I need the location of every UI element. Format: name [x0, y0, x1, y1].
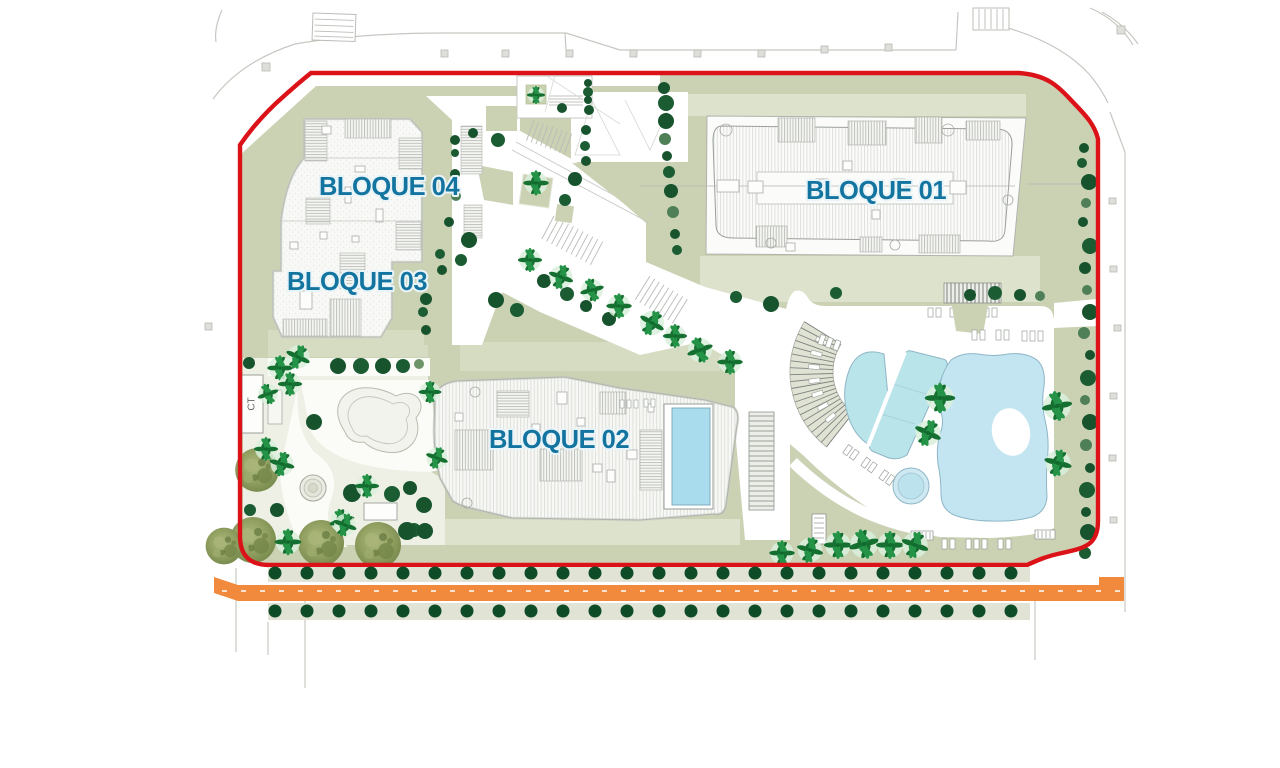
- svg-text:CT: CT: [247, 397, 258, 410]
- svg-text:BLOQUE 04: BLOQUE 04: [319, 173, 460, 201]
- svg-text:BLOQUE 01: BLOQUE 01: [806, 177, 946, 205]
- svg-text:BLOQUE 03: BLOQUE 03: [287, 268, 427, 296]
- svg-text:BLOQUE 02: BLOQUE 02: [489, 426, 629, 454]
